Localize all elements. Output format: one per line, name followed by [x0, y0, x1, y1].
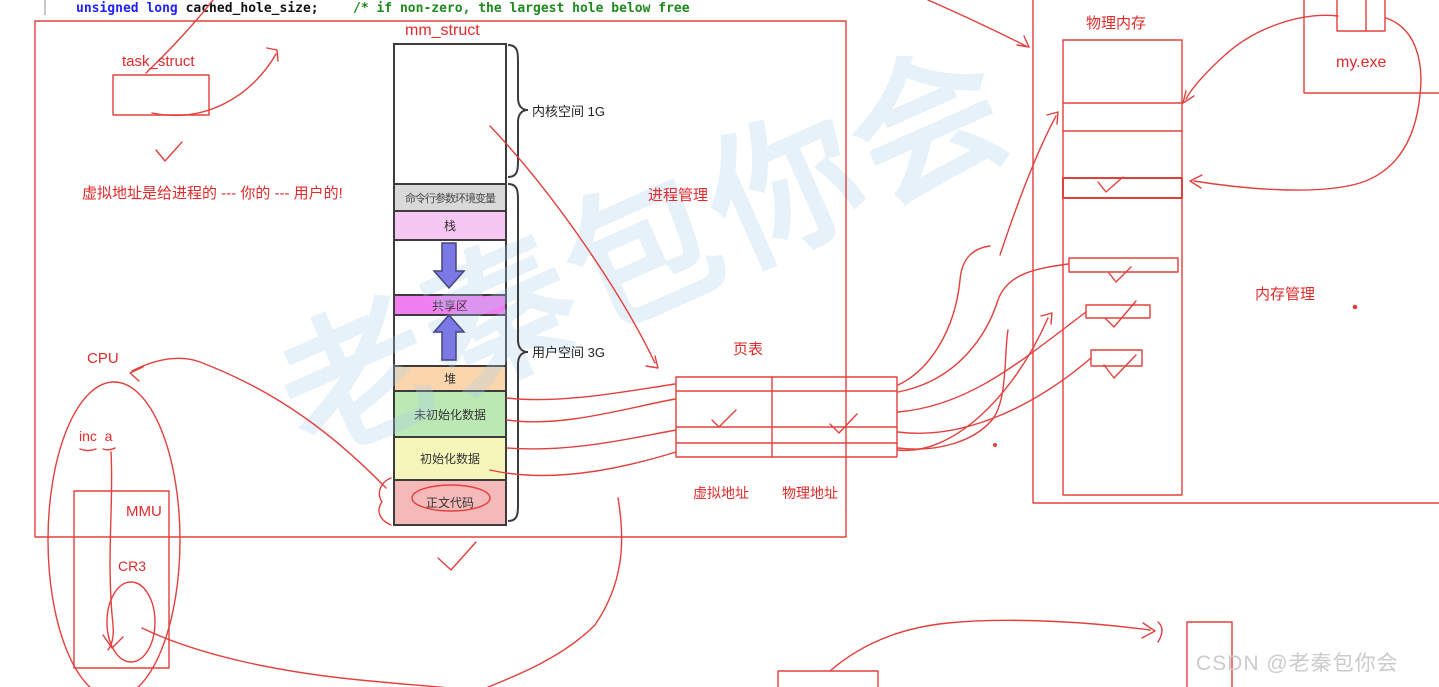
- mm-struct-label: mm_struct: [405, 22, 480, 40]
- instruction-label: inc a: [79, 428, 112, 444]
- exe-to-physmem-arrow-top: [1183, 15, 1338, 103]
- cpu-ellipse: [48, 382, 180, 687]
- memory-mgmt-box: [1033, 0, 1439, 503]
- my-exe-box: [1304, 0, 1439, 93]
- checkmark: [1109, 267, 1131, 282]
- user-space-brace: [508, 184, 528, 521]
- csdn-watermark: CSDN @老秦包你会: [1196, 647, 1399, 677]
- page-table-grid: [676, 377, 897, 457]
- checkmark: [438, 542, 476, 570]
- cpu-label: CPU: [87, 350, 119, 367]
- phys-frame-2: [1086, 305, 1150, 318]
- bottom-center-box: [778, 671, 878, 687]
- link-to-physmem-top: [1000, 112, 1058, 255]
- pagetable-to-physmem-links: [898, 246, 1091, 450]
- page-table-label: 页表: [733, 338, 763, 359]
- cr3-label: CR3: [118, 558, 146, 574]
- text-code-emphasis-ellipse: [412, 485, 490, 511]
- physical-addr-column-label: 物理地址: [782, 483, 838, 503]
- checkmark: [830, 414, 857, 433]
- physical-memory-label: 物理内存: [1086, 12, 1146, 33]
- mmu-label: MMU: [126, 503, 162, 520]
- checkmark: [712, 410, 736, 427]
- cr3-ellipse: [107, 582, 155, 662]
- bottom-swoop: [476, 498, 622, 687]
- exe-to-physmem-arrow-loop: [1190, 18, 1421, 190]
- heap-growth-up-arrow-icon: [434, 315, 464, 360]
- virtual-addr-column-label: 虚拟地址: [693, 483, 749, 503]
- mm-to-pagetable-arrow: [490, 126, 658, 368]
- user-space-label: 用户空间 3G: [532, 342, 605, 361]
- arrow-into-memory-mgmt: [928, 0, 1029, 47]
- task-struct-label: task_struct: [122, 53, 195, 70]
- stack-growth-down-arrow-icon: [434, 243, 464, 288]
- physical-memory-box: [1063, 40, 1182, 495]
- stray-dot: [994, 444, 997, 447]
- kernel-space-label: 内核空间 1G: [532, 101, 605, 120]
- my-exe-label: my.exe: [1336, 54, 1386, 72]
- bottom-box-arrow: [830, 620, 1162, 671]
- checkmark: [1098, 177, 1123, 192]
- memory-mgmt-label: 内存管理: [1255, 283, 1315, 304]
- textcode-to-cpu-arrow: [130, 358, 386, 488]
- task-struct-box: [113, 75, 209, 115]
- stray-dot: [1353, 305, 1356, 308]
- instruction-to-mmu-arrow: [103, 452, 123, 650]
- sketch-overlay: [0, 0, 1439, 687]
- text-segment-hook: [379, 478, 391, 525]
- instruction-underline: [80, 448, 115, 451]
- virtual-address-note: 虚拟地址是给进程的 --- 你的 --- 用户的!: [82, 182, 343, 203]
- phys-frame-3: [1091, 350, 1142, 366]
- cr3-out-curve: [142, 628, 485, 687]
- whiteboard-canvas: unsigned long cached_hole_size; /* if no…: [0, 0, 1439, 687]
- checkmark: [156, 142, 182, 161]
- process-mgmt-label: 进程管理: [648, 184, 708, 205]
- phys-frame-1: [1069, 258, 1178, 272]
